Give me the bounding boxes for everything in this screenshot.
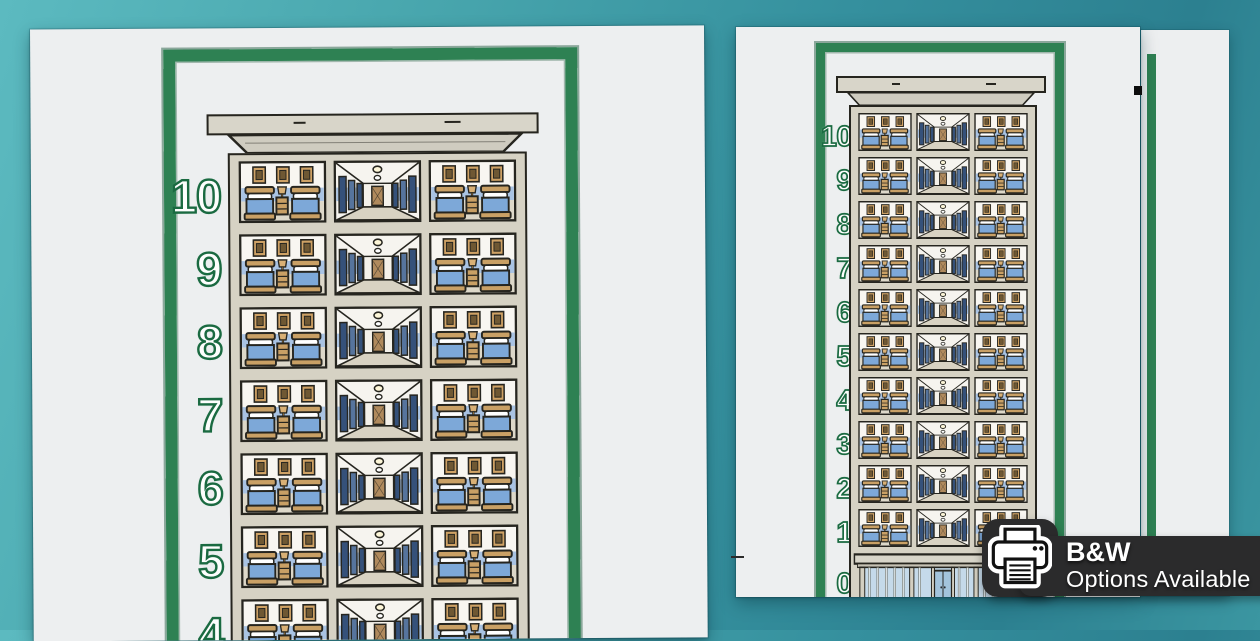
floor-row (856, 333, 1030, 371)
floor-number-label: 2 (781, 467, 852, 511)
preview-background: { "badge": { "title": "B&W", "subtitle":… (0, 0, 1260, 630)
floor-number-label: 4 (781, 379, 852, 423)
floor-number-label: 8 (150, 305, 222, 378)
floor-number-label: 10 (781, 115, 852, 159)
roof-cornice-right (836, 76, 1046, 93)
badge-subtitle: Options Available (1066, 567, 1251, 592)
floor-number-label: 8 (781, 203, 852, 247)
floor-row (856, 245, 1030, 283)
back-page-green-stripe (1147, 54, 1156, 570)
floor-number-label: 6 (151, 451, 223, 524)
badge-text: B&W Options Available (1066, 538, 1251, 593)
floor-number-label: 5 (151, 524, 223, 597)
floor-row (236, 305, 521, 369)
floor-row (235, 159, 520, 223)
floor-number-label: 3 (781, 423, 852, 467)
floor-row (237, 597, 522, 641)
floor-row (236, 378, 521, 442)
floor-numbers-column-left: 10987654 (149, 156, 224, 641)
poster-page-right: 109876543210 (736, 27, 1140, 597)
floor-row (235, 232, 520, 296)
floor-number-label: 7 (781, 247, 852, 291)
floor-number-label: 4 (151, 597, 223, 641)
floor-row (856, 421, 1030, 459)
floor-row (237, 451, 522, 515)
floor-numbers-column-right: 109876543210 (781, 110, 852, 598)
building-body-left (228, 151, 530, 641)
floor-row (856, 113, 1030, 151)
floor-number-label: 6 (781, 291, 852, 335)
floor-row (856, 201, 1030, 239)
floor-number-label: 5 (781, 335, 852, 379)
floor-row (237, 524, 522, 588)
floor-row (856, 377, 1030, 415)
floor-row (856, 289, 1030, 327)
floor-number-label: 9 (781, 159, 852, 203)
floor-number-label: 1 (781, 511, 852, 555)
roof-crown-right (844, 92, 1038, 106)
floor-row (856, 465, 1030, 503)
floor-row (856, 157, 1030, 195)
poster-page-left: 10987654 (30, 25, 708, 641)
printer-icon (988, 525, 1052, 591)
floor-number-label: 0 (781, 555, 852, 597)
floor-number-label: 7 (150, 378, 222, 451)
floor-number-label: 9 (149, 232, 221, 305)
floor-number-label: 10 (149, 159, 221, 232)
badge-title: B&W (1066, 538, 1251, 567)
stacked-page-behind (1141, 30, 1229, 596)
page-corner-mark (1134, 86, 1142, 95)
hotel-building-left: 10987654 (30, 25, 704, 29)
page-edge-tick (731, 556, 744, 558)
